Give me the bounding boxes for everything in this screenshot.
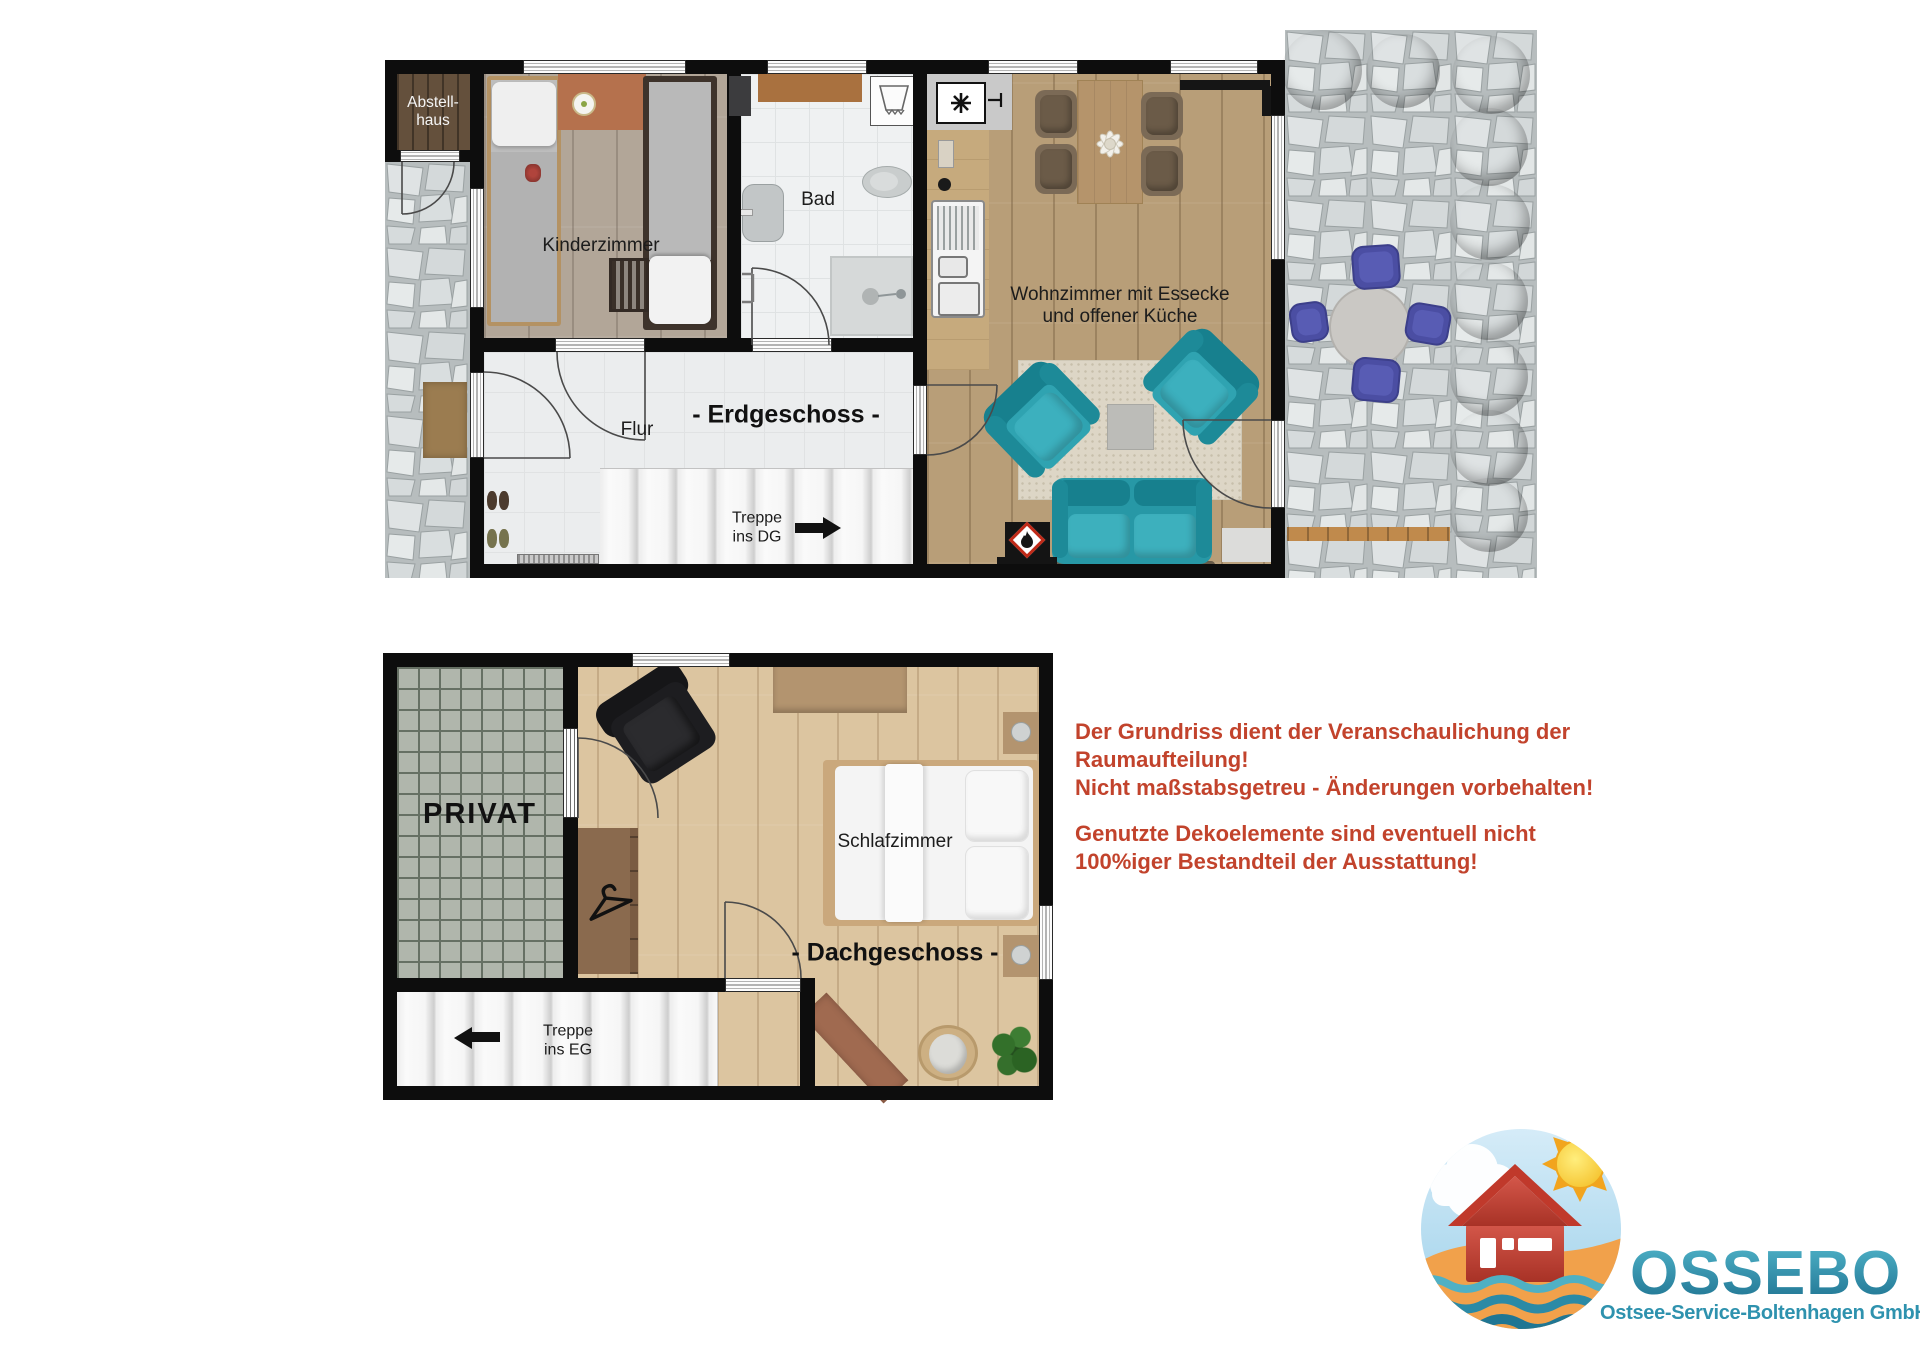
- knob: [938, 178, 951, 191]
- doormat: [517, 554, 599, 564]
- wall: [484, 338, 927, 352]
- basin: [938, 282, 980, 316]
- door-frame: [563, 728, 578, 818]
- garden-chair: [1350, 356, 1402, 404]
- logo-company-name: OSSEBO: [1630, 1238, 1901, 1309]
- dining-chair: [1141, 92, 1183, 140]
- logo-badge-icon: [1418, 1126, 1624, 1332]
- bush-icon: [1450, 262, 1528, 340]
- garden-chair: [1403, 300, 1453, 347]
- coffee-table: [1107, 404, 1154, 450]
- kids-bed-left: [487, 76, 561, 326]
- disclaimer-line: 100%iger Bestandteil der Ausstattung!: [1075, 848, 1595, 876]
- bush-icon: [1366, 34, 1440, 108]
- window: [523, 60, 686, 74]
- terrace-door-frame: [1271, 420, 1285, 508]
- bush-icon: [1450, 478, 1528, 552]
- washbasin: [742, 184, 784, 242]
- stairs-label-dg: Treppe ins EG: [543, 1022, 593, 1059]
- window: [1170, 60, 1258, 74]
- curtain-box: [870, 76, 914, 126]
- stairs-down-arrow-head: [454, 1027, 472, 1049]
- bush-icon: [1450, 338, 1528, 416]
- lamp-icon: [1011, 722, 1031, 742]
- floor-mat: [1222, 528, 1272, 562]
- room-label-schlafzimmer: Schlafzimmer: [837, 831, 952, 853]
- nightstand: [1003, 935, 1039, 977]
- kids-bed-right: [643, 76, 717, 330]
- wall: [470, 60, 484, 578]
- wall: [385, 60, 397, 162]
- wall: [800, 978, 815, 1100]
- plant-icon: [988, 1024, 1040, 1084]
- duct: [729, 76, 751, 116]
- shoe: [499, 491, 509, 510]
- wall: [563, 667, 578, 992]
- bush-icon: [1450, 184, 1530, 260]
- faucet: [739, 209, 753, 216]
- room-label-abstellhaus: Abstell- haus: [407, 94, 459, 130]
- room-label-privat: PRIVAT: [423, 798, 537, 832]
- room-label-wohnzimmer: Wohnzimmer mit Essecke und offener Küche: [1010, 284, 1229, 328]
- lamp-icon: [572, 92, 596, 116]
- dining-chair: [1035, 144, 1077, 194]
- wall: [913, 74, 927, 564]
- wall: [383, 978, 725, 992]
- window: [1271, 115, 1285, 260]
- stairs-down-arrow-icon: [472, 1032, 500, 1042]
- wardrobe: [578, 828, 638, 974]
- dining-chair: [1035, 90, 1077, 138]
- door-frame: [913, 385, 927, 455]
- shower: [830, 256, 913, 336]
- sideboard: [773, 667, 907, 713]
- disclaimer-text: Der Grundriss dient der Veranschaulichun…: [1075, 718, 1595, 876]
- disclaimer-line: Raumaufteilung!: [1075, 746, 1595, 774]
- window: [988, 60, 1078, 74]
- entrance-door-frame: [470, 372, 484, 458]
- logo-subtitle: Ostsee-Service-Boltenhagen GmbH: [1600, 1302, 1920, 1325]
- room-label-kinderzimmer: Kinderzimmer: [542, 235, 659, 257]
- bush-icon: [1450, 410, 1528, 486]
- pillow: [492, 82, 556, 146]
- garden-chair: [1287, 300, 1330, 345]
- stairs-up-arrow-head: [823, 517, 841, 539]
- toilet: [862, 166, 912, 198]
- wall: [1039, 653, 1053, 1100]
- door-frame: [752, 338, 832, 352]
- window: [767, 60, 867, 74]
- company-logo: OSSEBO Ostsee-Service-Boltenhagen GmbH: [1418, 1126, 1898, 1338]
- disclaimer-line: Genutzte Dekoelemente sind eventuell nic…: [1075, 820, 1595, 848]
- disclaimer-line: Der Grundriss dient der Veranschaulichun…: [1075, 718, 1595, 746]
- bath-shelf: [758, 74, 862, 102]
- garden-deck-strip: [1287, 527, 1450, 541]
- wall: [383, 1086, 1053, 1100]
- disclaimer-line: Nicht maßstabsgetreu - Änderungen vorbeh…: [1075, 774, 1595, 802]
- stairs-up-arrow-icon: [795, 523, 823, 533]
- dining-chair: [1141, 146, 1183, 196]
- sink: [938, 256, 968, 278]
- kids-cabinet: [558, 74, 646, 130]
- shoe: [499, 529, 509, 548]
- stone-path: [385, 162, 470, 578]
- tv-board: [1180, 80, 1270, 90]
- drainer: [937, 206, 979, 250]
- nightstand: [1003, 712, 1039, 754]
- fridge-icon: [936, 82, 986, 124]
- shower-drain: [862, 288, 879, 305]
- sink-unit: [931, 200, 985, 318]
- lamp-icon: [1011, 945, 1031, 965]
- floorplan-page: Abstell- haus Kinderzimmer Bad Wohnzimme…: [0, 0, 1920, 1358]
- dining-table: [1077, 80, 1143, 204]
- wall: [470, 564, 1285, 578]
- basket-chair: [918, 1025, 978, 1081]
- stairs-label-eg: Treppe ins DG: [732, 509, 782, 546]
- abstellhaus-door-frame: [400, 150, 460, 162]
- room-label-flur: Flur: [621, 419, 654, 441]
- floor-title-dachgeschoss: - Dachgeschoss -: [791, 939, 998, 968]
- window: [470, 188, 484, 308]
- garden-chair: [1351, 243, 1402, 290]
- floor-title-erdgeschoss: - Erdgeschoss -: [692, 401, 880, 430]
- pillow: [965, 770, 1029, 842]
- pillow: [965, 846, 1029, 920]
- sofa-teal: [1052, 478, 1212, 564]
- window: [632, 653, 730, 667]
- crib: [609, 258, 649, 312]
- bush-icon: [1282, 30, 1362, 110]
- shoe: [487, 529, 497, 548]
- shoe: [487, 491, 497, 510]
- toy: [525, 164, 541, 182]
- bush-icon: [1450, 108, 1528, 186]
- door-frame: [555, 338, 645, 352]
- door-frame: [725, 978, 801, 992]
- wall: [383, 653, 397, 1100]
- sun-icon: [1542, 1126, 1618, 1202]
- garden-table: [1329, 286, 1411, 368]
- waves-icon: [1418, 1279, 1624, 1329]
- window: [1039, 905, 1053, 980]
- outdoor-mat: [423, 382, 467, 458]
- bush-icon: [1452, 36, 1530, 114]
- room-label-bad: Bad: [801, 189, 835, 211]
- pillow: [649, 256, 711, 324]
- toaster: [938, 140, 954, 168]
